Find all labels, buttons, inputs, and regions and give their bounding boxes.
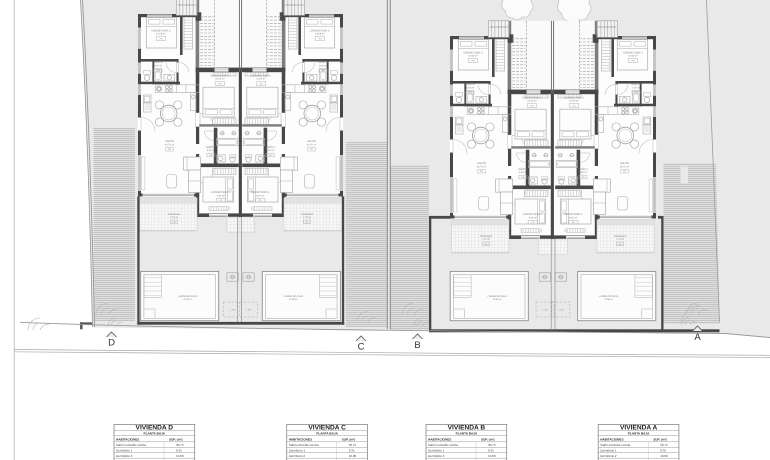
svg-text:3.05 m²: 3.05 m² — [466, 86, 474, 89]
svg-text:VIVIENDA D: VIVIENDA D — [136, 425, 174, 432]
svg-text:13.58 m²: 13.58 m² — [156, 33, 166, 36]
svg-text:23.85 m²: 23.85 m² — [493, 298, 502, 301]
svg-text:10.00 m²: 10.00 m² — [527, 100, 537, 103]
svg-text:PLANTA BAJA: PLANTA BAJA — [628, 432, 650, 436]
svg-text:HABITACIONES: HABITACIONES — [428, 437, 451, 441]
svg-text:SUP. (m²): SUP. (m²) — [653, 437, 667, 441]
svg-text:PLANTA BAJA: PLANTA BAJA — [316, 432, 338, 436]
svg-text:8.35 m²: 8.35 m² — [569, 216, 577, 219]
svg-text:7.70 m²: 7.70 m² — [482, 238, 490, 241]
svg-text:HABITACIONES: HABITACIONES — [289, 437, 312, 441]
svg-text:30.75: 30.75 — [349, 443, 357, 447]
svg-text:3.60 m²: 3.60 m² — [266, 149, 274, 152]
svg-text:8.35 m²: 8.35 m² — [217, 194, 225, 197]
svg-text:30.75: 30.75 — [176, 443, 184, 447]
svg-text:10.00: 10.00 — [488, 454, 496, 458]
svg-text:7.70 m²: 7.70 m² — [303, 216, 311, 219]
svg-text:L. PIS: L. PIS — [230, 309, 236, 312]
svg-text:8.35: 8.35 — [176, 448, 182, 452]
svg-text:Salón-comedor-cocina: Salón-comedor-cocina — [289, 443, 319, 447]
svg-text:13.58 m²: 13.58 m² — [468, 55, 478, 58]
svg-text:3.60 m²: 3.60 m² — [519, 171, 527, 174]
svg-text:Dormitorio 2: Dormitorio 2 — [600, 454, 617, 458]
svg-text:10.00: 10.00 — [176, 454, 184, 458]
svg-text:C: C — [358, 342, 365, 353]
svg-text:PLANTA BAJA: PLANTA BAJA — [456, 432, 478, 436]
svg-text:3.60 m²: 3.60 m² — [207, 149, 215, 152]
svg-text:VIVIENDA C: VIVIENDA C — [308, 425, 346, 432]
svg-text:8.35 m²: 8.35 m² — [256, 194, 264, 197]
svg-text:L. PIS: L. PIS — [558, 309, 564, 312]
svg-text:10.00 m²: 10.00 m² — [569, 100, 579, 103]
svg-text:3.05 m²: 3.05 m² — [319, 64, 327, 67]
svg-text:SUP. (m²): SUP. (m²) — [169, 437, 183, 441]
svg-text:10.00: 10.00 — [660, 454, 668, 458]
svg-text:7.70 m²: 7.70 m² — [616, 238, 624, 241]
svg-text:A: A — [694, 332, 701, 343]
svg-text:13.58 m²: 13.58 m² — [628, 55, 638, 58]
svg-text:22.00 m²: 22.00 m² — [183, 298, 192, 301]
svg-text:10.00 m²: 10.00 m² — [256, 78, 266, 81]
svg-text:30.75 m²: 30.75 m² — [307, 143, 317, 146]
svg-text:30.75: 30.75 — [488, 443, 496, 447]
svg-text:8.35: 8.35 — [660, 448, 666, 452]
svg-text:Dormitorio 1: Dormitorio 1 — [116, 448, 133, 452]
svg-text:L. PIS: L. PIS — [542, 309, 548, 312]
svg-text:8.35: 8.35 — [349, 448, 355, 452]
svg-text:30.75 m²: 30.75 m² — [620, 165, 630, 168]
svg-text:LÁMINA DE AGUA: LÁMINA DE AGUA — [488, 295, 508, 298]
svg-text:VIVIENDA B: VIVIENDA B — [448, 425, 486, 432]
svg-text:8.35 m²: 8.35 m² — [529, 216, 537, 219]
svg-text:HABITACIONES: HABITACIONES — [116, 437, 139, 441]
svg-text:Salón-comedor-cocina: Salón-comedor-cocina — [600, 443, 630, 447]
svg-text:PLANTA BAJA: PLANTA BAJA — [144, 432, 166, 436]
svg-text:LÁMINA DE AGUA: LÁMINA DE AGUA — [284, 295, 304, 298]
svg-text:10.00: 10.00 — [349, 454, 357, 458]
svg-text:L. PIS: L. PIS — [246, 309, 252, 312]
svg-text:LÁMINA DE AGUA: LÁMINA DE AGUA — [178, 295, 198, 298]
svg-text:3.05 m²: 3.05 m² — [632, 86, 640, 89]
svg-text:Dormitorio 2: Dormitorio 2 — [289, 454, 306, 458]
svg-text:VIVIENDA A: VIVIENDA A — [620, 425, 657, 432]
svg-text:22.00 m²: 22.00 m² — [289, 298, 298, 301]
svg-text:Dormitorio 2: Dormitorio 2 — [428, 454, 445, 458]
svg-text:8.35: 8.35 — [488, 448, 494, 452]
svg-text:SUP. (m²): SUP. (m²) — [342, 437, 356, 441]
svg-text:10.00 m²: 10.00 m² — [215, 78, 225, 81]
svg-text:Dormitorio 1: Dormitorio 1 — [600, 448, 617, 452]
svg-text:3.60 m²: 3.60 m² — [579, 171, 587, 174]
svg-text:Dormitorio 2: Dormitorio 2 — [116, 454, 133, 458]
svg-text:Salón-comedor-cocina: Salón-comedor-cocina — [116, 443, 146, 447]
svg-text:Dormitorio 1: Dormitorio 1 — [428, 448, 445, 452]
svg-text:SUP. (m²): SUP. (m²) — [481, 437, 495, 441]
svg-text:D: D — [108, 338, 115, 349]
svg-text:HABITACIONES: HABITACIONES — [600, 437, 623, 441]
svg-text:30.75 m²: 30.75 m² — [477, 165, 487, 168]
svg-text:30.75: 30.75 — [660, 443, 668, 447]
svg-text:7.70 m²: 7.70 m² — [170, 216, 178, 219]
svg-text:23.85 m²: 23.85 m² — [604, 298, 613, 301]
svg-text:B: B — [414, 340, 420, 351]
svg-text:Dormitorio 1: Dormitorio 1 — [289, 448, 306, 452]
svg-text:30.75 m²: 30.75 m² — [165, 143, 175, 146]
svg-text:LÁMINA DE AGUA: LÁMINA DE AGUA — [599, 295, 619, 298]
svg-text:13.58 m²: 13.58 m² — [315, 33, 325, 36]
svg-text:3.05 m²: 3.05 m² — [154, 64, 162, 67]
svg-text:Salón-comedor-cocina: Salón-comedor-cocina — [428, 443, 458, 447]
